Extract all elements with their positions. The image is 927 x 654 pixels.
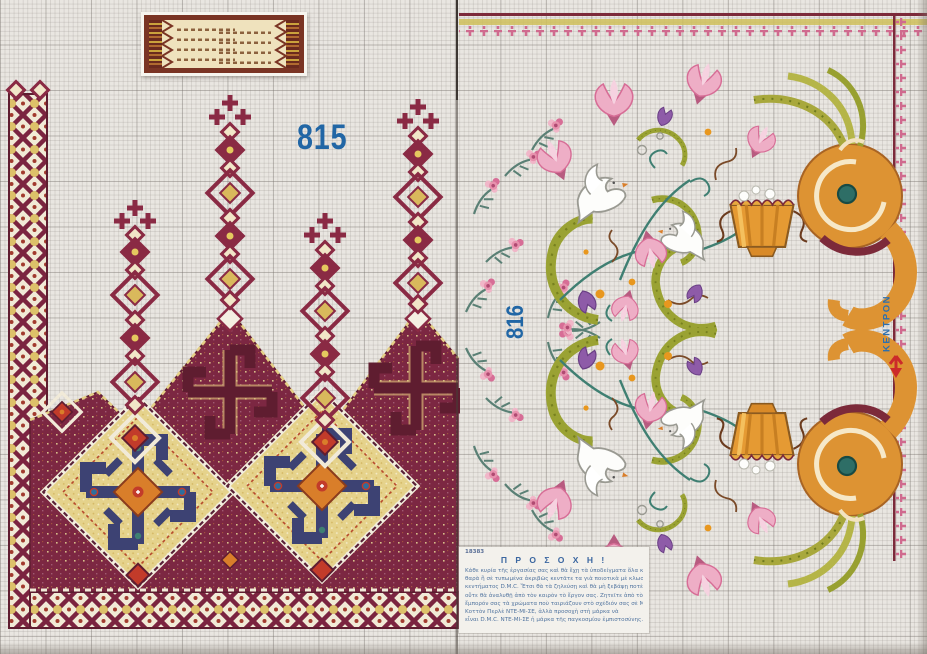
caution-line: οὔτε θὰ ἀναλυθῇ ἀπὸ τὸν καιρὸν τὸ ἔργον … (465, 592, 643, 600)
caution-line: εἶναι D.M.C. ΝΤΕ-ΜΙ-ΣΕ ἡ μάρκα τῆς παγκο… (465, 616, 643, 624)
caution-line: Κάθε κυρία τῆς ἐργασίας σας καὶ θὰ ἔχῃ τ… (465, 567, 643, 575)
band-photo (141, 12, 307, 76)
kentron-label: ΚΕΝΤΡΟΝ (882, 289, 893, 359)
caution-line: κεντήματος D.M.C. Ἔτσι θὰ τὰ ζηλεύσῃ καὶ… (465, 583, 643, 591)
caution-line: ἔμπορόν σας τὰ χρώματα ποὺ ταιριάζουν στ… (465, 600, 643, 608)
band-stitch-rows (219, 30, 271, 64)
caution-box: 18383 Π Ρ Ο Σ Ο Χ Η ! Κάθε κυρία τῆς ἐργ… (459, 547, 649, 633)
basket-icon (717, 186, 807, 256)
woven-band-image (144, 15, 304, 73)
pattern-sheet: 815 816 ΚΕΝΤΡΟΝ 18383 Π Ρ Ο Σ Ο Χ Η ! Κά… (0, 0, 927, 654)
pattern-number-816: 816 (502, 303, 530, 340)
top-border (459, 13, 927, 36)
sheet-right-edge (917, 0, 927, 654)
caution-line: Κοττὸν Περλὲ ΝΤΕ-ΜΙ-ΣΕ, ἀλλὰ προσοχὴ στὴ… (465, 608, 643, 616)
caution-line: θαρὰ ἢ σὲ τυπωμένα ἀκριβῶς κεντᾶτε τα γι… (465, 575, 643, 583)
caution-title: Π Ρ Ο Σ Ο Χ Η ! (465, 555, 643, 565)
band-ornament-left (149, 20, 162, 68)
page-fold-divider (456, 0, 458, 654)
cornucopia-icon (754, 70, 906, 319)
sheet-bottom-edge (0, 642, 927, 654)
pattern-number-815: 815 (297, 118, 347, 158)
